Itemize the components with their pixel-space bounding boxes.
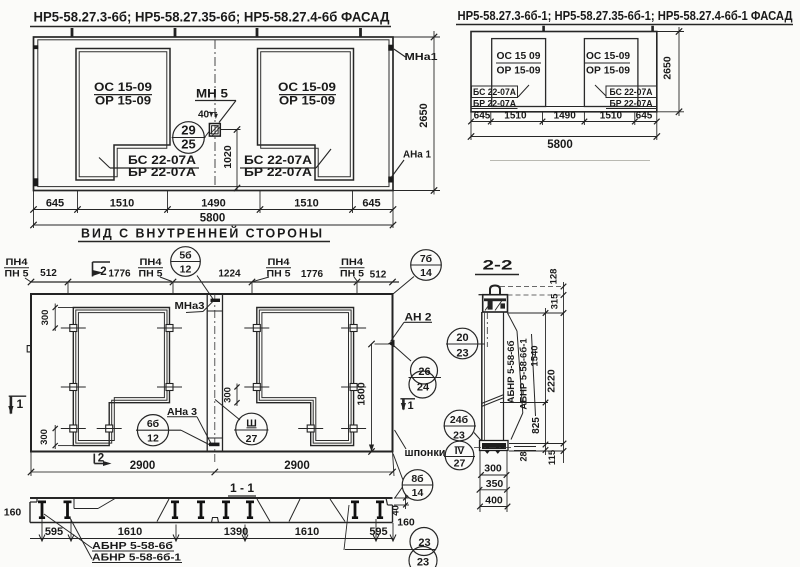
svg-text:645: 645 <box>474 111 491 122</box>
svg-text:МНа3: МНа3 <box>175 301 205 312</box>
svg-text:6б: 6б <box>147 418 160 430</box>
svg-text:1224: 1224 <box>218 269 241 280</box>
svg-text:300: 300 <box>40 310 51 326</box>
svg-text:2650: 2650 <box>662 56 674 80</box>
svg-text:IV: IV <box>455 446 465 457</box>
svg-text:БР 22-07А: БР 22-07А <box>610 99 653 110</box>
svg-text:315: 315 <box>550 293 561 310</box>
svg-text:1510: 1510 <box>294 198 318 210</box>
svg-text:БР 22-07А: БР 22-07А <box>244 167 312 179</box>
svg-text:БР 22-07А: БР 22-07А <box>128 167 196 179</box>
svg-text:1390: 1390 <box>224 526 248 538</box>
svg-text:2: 2 <box>98 453 104 465</box>
svg-text:2: 2 <box>100 266 106 278</box>
svg-text:7б: 7б <box>420 253 433 265</box>
svg-text:24б: 24б <box>450 414 469 426</box>
svg-text:160: 160 <box>397 517 415 529</box>
svg-text:128: 128 <box>549 269 560 285</box>
svg-text:1490: 1490 <box>201 198 225 210</box>
svg-text:645: 645 <box>46 198 64 210</box>
svg-text:28: 28 <box>519 451 529 461</box>
svg-text:23: 23 <box>417 557 429 567</box>
svg-text:115: 115 <box>547 449 558 465</box>
svg-text:512: 512 <box>40 268 57 279</box>
svg-text:ОС 15-09: ОС 15-09 <box>278 82 336 94</box>
svg-text:1510: 1510 <box>110 198 134 210</box>
svg-text:2900: 2900 <box>130 460 156 472</box>
svg-text:645: 645 <box>636 111 653 122</box>
svg-text:2900: 2900 <box>284 460 310 472</box>
svg-text:ПН 5: ПН 5 <box>340 269 365 280</box>
svg-text:БС 22-07А: БС 22-07А <box>610 87 653 98</box>
svg-text:ОС 15-09: ОС 15-09 <box>586 51 630 62</box>
svg-text:20: 20 <box>456 332 468 344</box>
svg-text:ПН4: ПН4 <box>268 257 291 268</box>
svg-text:8б: 8б <box>411 473 424 485</box>
svg-text:ПН4: ПН4 <box>341 257 364 268</box>
svg-text:512: 512 <box>370 270 387 281</box>
svg-text:АБНР 5-58-6б: АБНР 5-58-6б <box>506 340 517 403</box>
svg-text:ПН4: ПН4 <box>140 257 163 268</box>
svg-text:1490: 1490 <box>554 111 577 122</box>
svg-text:1: 1 <box>407 400 413 412</box>
svg-text:29: 29 <box>181 122 195 137</box>
svg-text:825: 825 <box>531 417 542 434</box>
svg-text:1510: 1510 <box>600 111 623 122</box>
svg-text:2220: 2220 <box>546 369 558 393</box>
svg-text:12: 12 <box>147 432 159 444</box>
svg-text:5800: 5800 <box>200 213 226 225</box>
svg-text:1540: 1540 <box>530 345 541 366</box>
svg-text:ОР 15-09: ОР 15-09 <box>279 96 335 108</box>
svg-text:НР5-58.27.3-6б; НР5-58.27.35-6: НР5-58.27.3-6б; НР5-58.27.35-6б; НР5-58.… <box>34 10 390 25</box>
svg-text:300: 300 <box>484 463 502 475</box>
svg-text:5б: 5б <box>179 249 192 261</box>
svg-text:АБНР 5-58-6б-1: АБНР 5-58-6б-1 <box>92 552 181 564</box>
svg-text:14: 14 <box>412 487 424 499</box>
svg-text:1800: 1800 <box>356 382 368 406</box>
svg-text:1020: 1020 <box>222 145 234 169</box>
svg-text:23: 23 <box>456 348 468 360</box>
svg-text:26: 26 <box>418 366 430 378</box>
svg-text:27: 27 <box>454 458 466 470</box>
svg-text:АБНР 5-58-6б: АБНР 5-58-6б <box>92 540 174 552</box>
svg-text:1610: 1610 <box>295 526 319 538</box>
svg-text:40: 40 <box>391 505 402 516</box>
svg-text:1: 1 <box>16 397 23 411</box>
svg-text:БР 22-07А: БР 22-07А <box>473 99 516 110</box>
svg-text:23: 23 <box>453 430 465 442</box>
svg-text:27: 27 <box>246 433 258 445</box>
svg-text:ПН 5: ПН 5 <box>139 269 164 280</box>
svg-text:400: 400 <box>485 495 503 507</box>
svg-text:ОР 15-09: ОР 15-09 <box>497 66 541 77</box>
svg-text:1 - 1: 1 - 1 <box>230 481 254 495</box>
svg-text:595: 595 <box>45 526 63 538</box>
svg-text:645: 645 <box>362 198 380 210</box>
svg-text:14: 14 <box>420 267 432 279</box>
svg-text:300: 300 <box>39 429 50 445</box>
svg-text:АН 2: АН 2 <box>405 312 432 324</box>
svg-text:23: 23 <box>418 537 430 549</box>
svg-text:ОР 15-09: ОР 15-09 <box>586 66 630 77</box>
svg-text:НР5-58.27.3-6б-1; НР5-58.27.35: НР5-58.27.3-6б-1; НР5-58.27.35-6б-1; НР5… <box>458 9 793 23</box>
svg-text:2-2: 2-2 <box>483 258 513 273</box>
svg-text:АБНР 5-58-6б-1: АБНР 5-58-6б-1 <box>519 338 530 410</box>
svg-text:350: 350 <box>486 478 504 490</box>
svg-text:1776: 1776 <box>301 269 324 280</box>
svg-text:ВИД С ВНУТРЕННЕЙ СТОРОНЫ: ВИД С ВНУТРЕННЕЙ СТОРОНЫ <box>81 226 324 241</box>
svg-text:ПН4: ПН4 <box>6 257 29 268</box>
svg-text:25: 25 <box>181 137 195 152</box>
svg-text:12: 12 <box>180 264 192 276</box>
svg-text:40: 40 <box>198 110 210 121</box>
svg-text:1776: 1776 <box>108 269 131 280</box>
svg-text:1610: 1610 <box>118 526 142 538</box>
svg-text:ОС 15-09: ОС 15-09 <box>94 82 152 94</box>
svg-text:300: 300 <box>223 387 234 403</box>
svg-text:АНа 1: АНа 1 <box>403 149 431 161</box>
svg-text:МНа1: МНа1 <box>405 51 438 63</box>
svg-text:2650: 2650 <box>418 103 430 127</box>
svg-text:1510: 1510 <box>504 111 527 122</box>
svg-text:БС 22-07А: БС 22-07А <box>473 87 516 98</box>
svg-text:БС 22-07А: БС 22-07А <box>244 155 312 167</box>
svg-text:5800: 5800 <box>547 139 573 151</box>
svg-text:24: 24 <box>417 382 430 394</box>
svg-text:ОР 15-09: ОР 15-09 <box>95 96 151 108</box>
svg-text:595: 595 <box>369 526 387 538</box>
svg-text:БС 22-07А: БС 22-07А <box>128 155 196 167</box>
svg-text:ПН 5: ПН 5 <box>267 269 292 280</box>
svg-text:МН 5: МН 5 <box>196 89 229 101</box>
svg-text:шпонки: шпонки <box>405 447 446 459</box>
svg-text:ОС 15 09: ОС 15 09 <box>497 51 541 62</box>
svg-text:160: 160 <box>4 507 22 519</box>
